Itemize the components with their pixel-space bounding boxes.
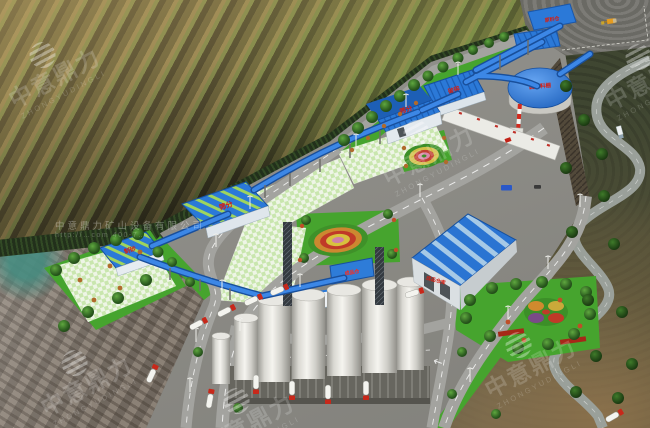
aerial-plant-render: 原料仓 破碎 圆形料棚 bbox=[0, 0, 650, 428]
